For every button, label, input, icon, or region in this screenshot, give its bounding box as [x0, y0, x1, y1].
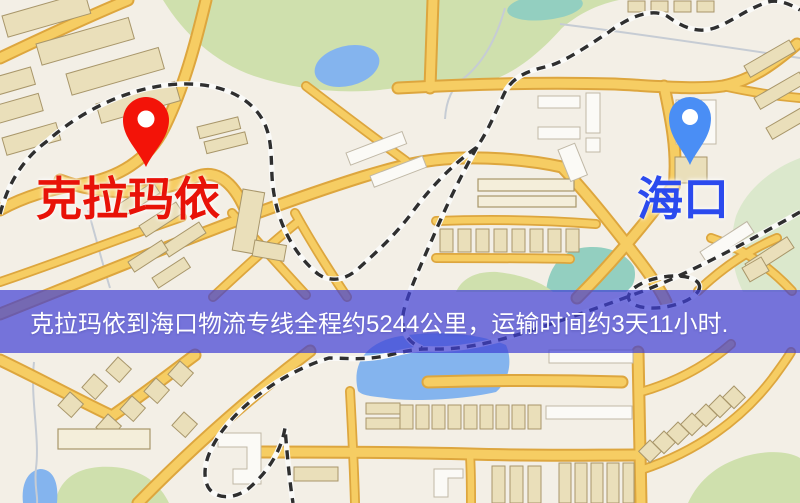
map-canvas: 克拉玛依 海口 克拉玛依到海口物流专线全程约5244公里，运输时间约3天11小时… — [0, 0, 800, 503]
route-info-banner: 克拉玛依到海口物流专线全程约5244公里，运输时间约3天11小时. — [0, 290, 800, 353]
map-background — [0, 0, 800, 503]
origin-city-label: 克拉玛依 — [36, 176, 220, 222]
destination-city-label: 海口 — [637, 176, 729, 222]
route-info-text: 克拉玛依到海口物流专线全程约5244公里，运输时间约3天11小时. — [0, 304, 728, 339]
